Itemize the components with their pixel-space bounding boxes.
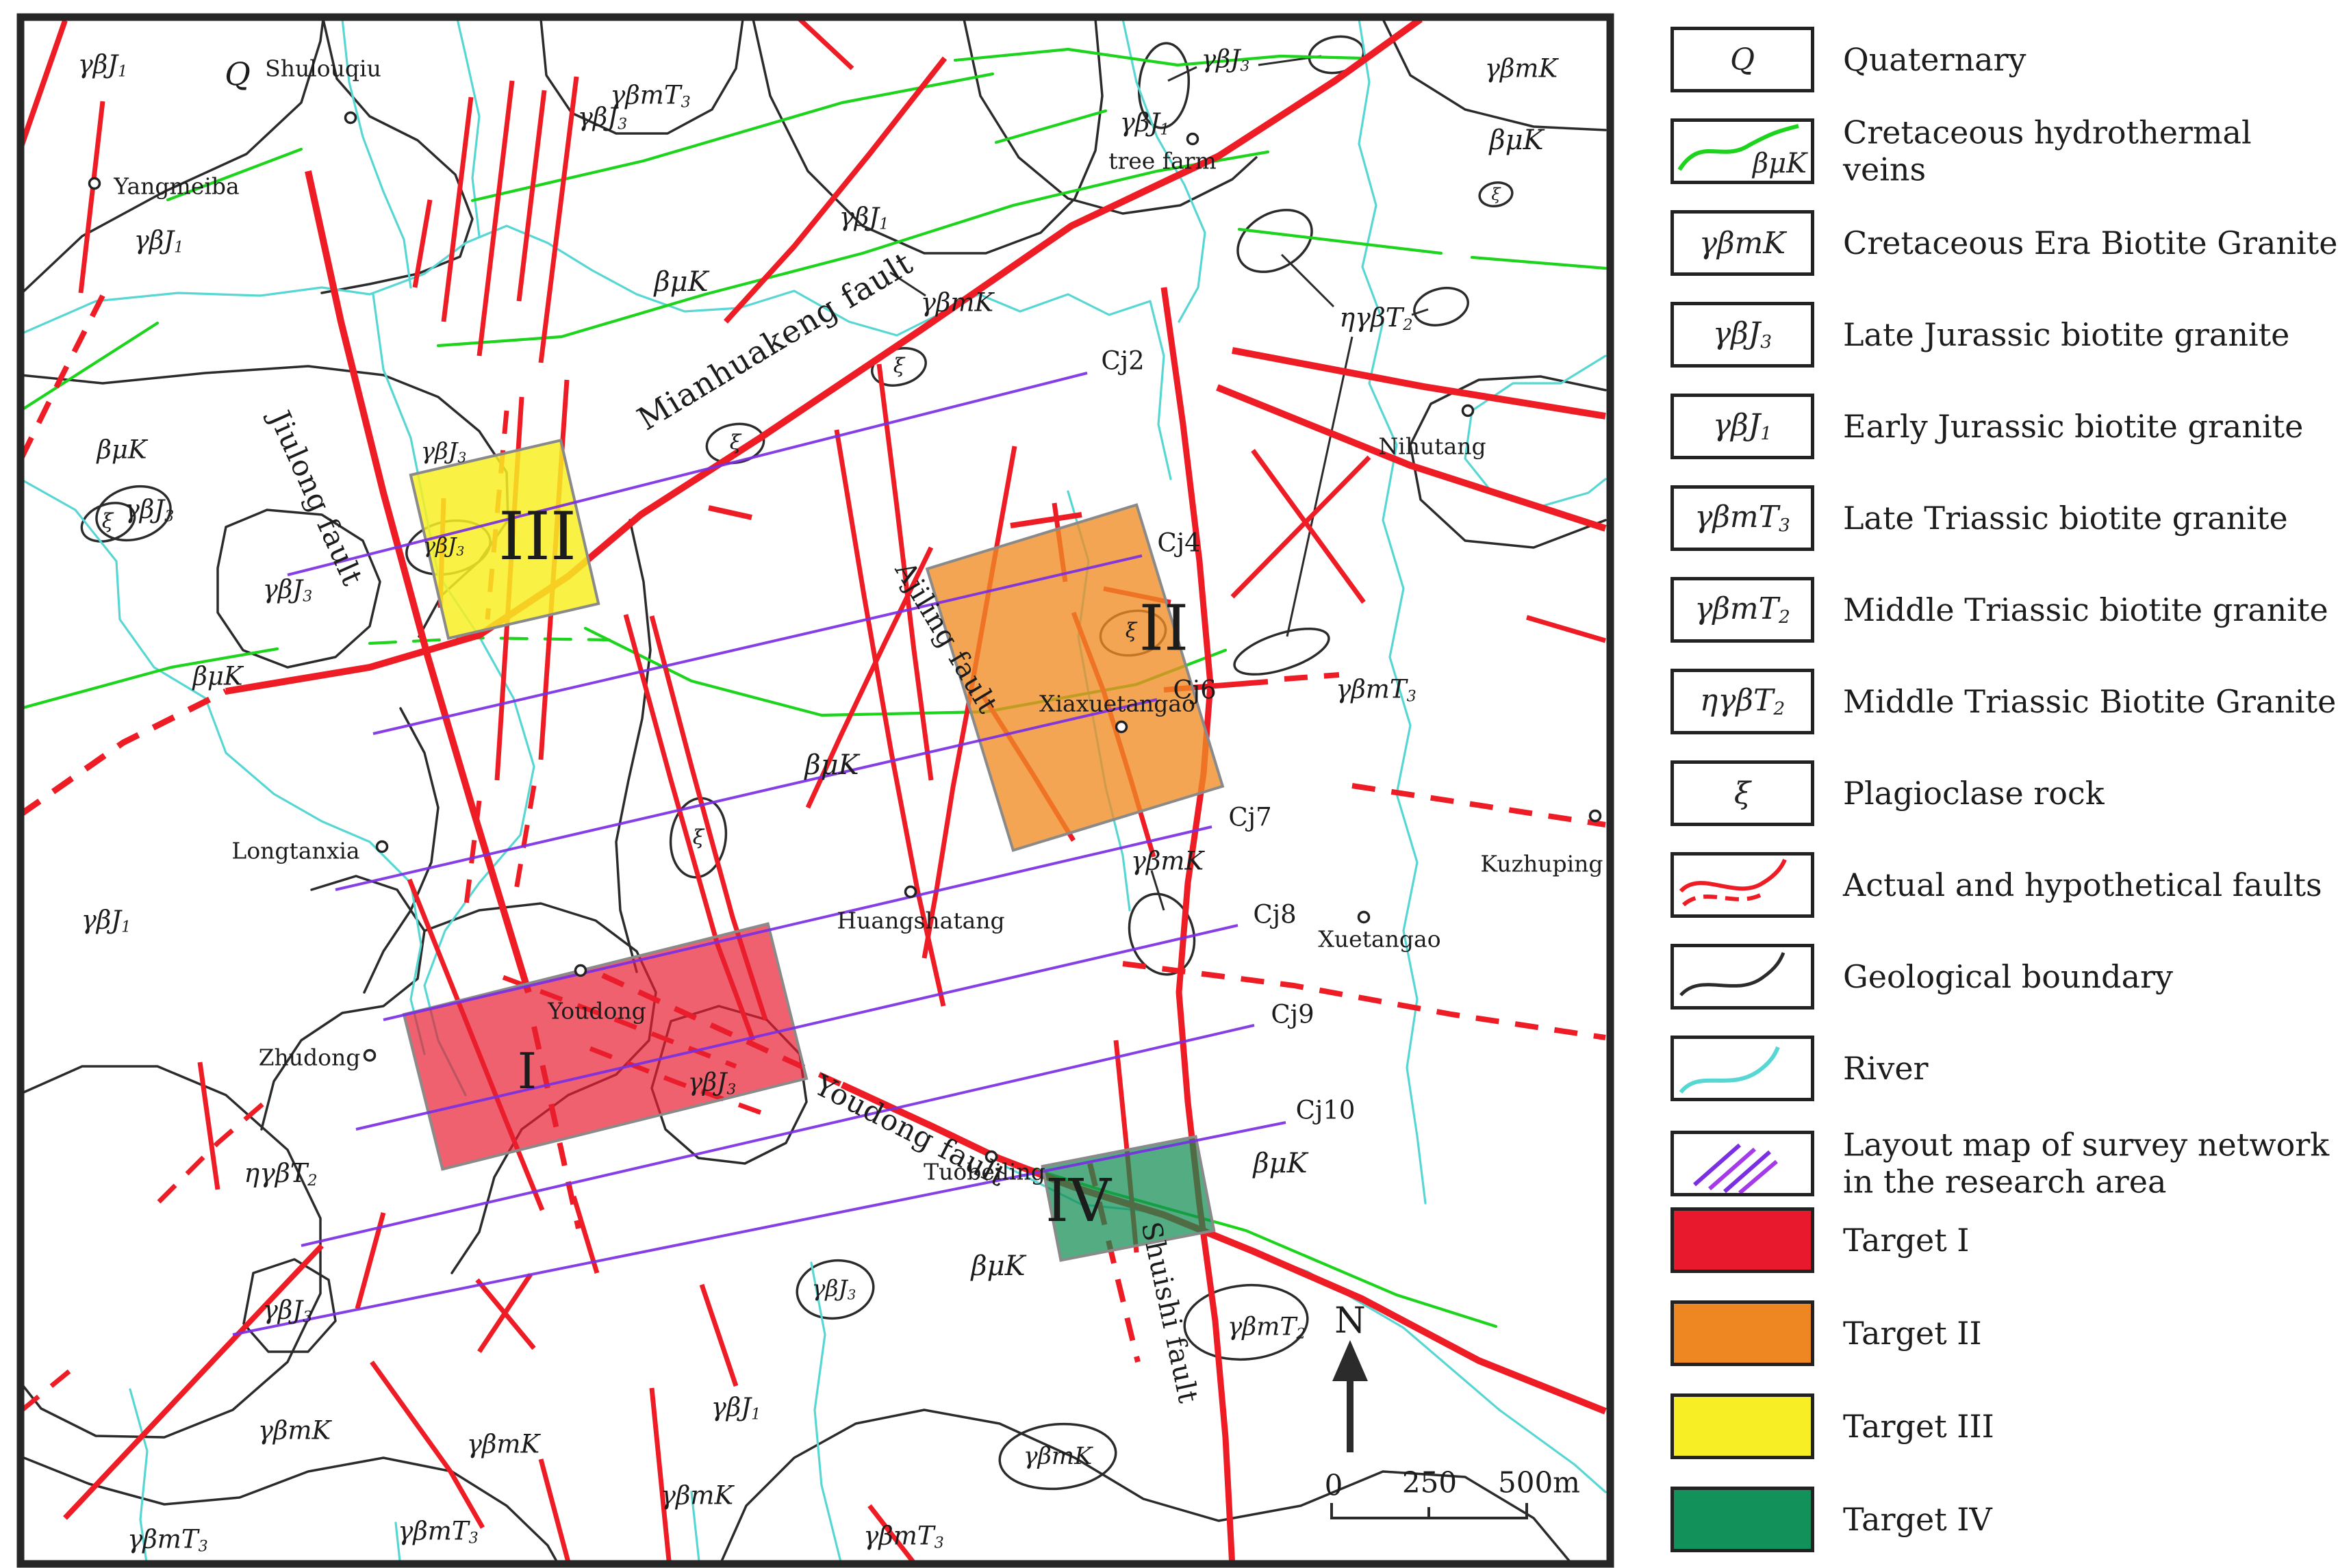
- legend-swatch-2: βμK: [1670, 118, 1814, 184]
- legend-label-5: Early Jurassic biotite granite: [1843, 408, 2303, 445]
- unit-symbol-subscript: 3: [1760, 332, 1772, 353]
- legend-label-3: Cretaceous Era Biotite Granite: [1843, 224, 2337, 261]
- legend-symbol-text: γβJ1: [1713, 408, 1772, 444]
- unit-symbol-subscript: 3: [1779, 515, 1790, 537]
- legend-swatch-15: [1670, 1300, 1814, 1366]
- legend-label-4: Late Jurassic biotite granite: [1843, 316, 2289, 353]
- legend-symbol-text: γβmT2: [1694, 591, 1790, 628]
- place-marker-shulouqiu: [346, 113, 356, 123]
- legend-label-6: Late Triassic biotite granite: [1843, 500, 2288, 537]
- legend-swatch-16: [1670, 1393, 1814, 1459]
- legend-label-17: Target IV: [1843, 1501, 1992, 1538]
- legend-symbol-text: γβmT3: [1694, 500, 1790, 536]
- legend-swatch-7: γβmT2: [1670, 577, 1814, 643]
- legend-label-7: Middle Triassic biotite granite: [1843, 591, 2328, 628]
- legend-label-11: Geological boundary: [1843, 958, 2173, 995]
- unit-symbol-base: γβmT: [1694, 591, 1779, 626]
- place-marker-kuzhuping: [1590, 811, 1601, 821]
- faults-icon: [1674, 856, 1811, 914]
- unit-symbol-subscript: 2: [1773, 699, 1785, 720]
- legend-swatch-3: γβmK: [1670, 210, 1814, 276]
- unit-symbol-base: γβJ: [1713, 316, 1760, 351]
- legend-swatch-9: ξ: [1670, 760, 1814, 826]
- legend-swatch-14: [1670, 1207, 1814, 1273]
- place-marker-tuobeiling: [987, 1152, 997, 1162]
- place-marker-yangmeiba: [90, 179, 100, 189]
- place-marker-zhudong: [365, 1051, 375, 1061]
- unit-symbol-subscript: 2: [1779, 607, 1790, 628]
- unit-symbol-base: γβmT: [1694, 500, 1779, 535]
- legend-symbol-text: γβmK: [1699, 226, 1786, 261]
- legend-label-14: Target I: [1843, 1222, 1969, 1259]
- unit-symbol-base: ηγβT: [1700, 683, 1773, 718]
- legend-swatch-1: Q: [1670, 27, 1814, 92]
- legend-label-10: Actual and hypothetical faults: [1843, 866, 2322, 903]
- legend-swatch-10: [1670, 852, 1814, 918]
- unit-symbol-base: γβJ: [1713, 408, 1760, 443]
- legend-swatch-12: [1670, 1036, 1814, 1101]
- legend-symbol-text: γβJ3: [1713, 316, 1772, 352]
- geological-map-figure: QγβJ1γβJ1γβJ1γβJ1γβJ1γβJ1γβJ3γβJ3γβJ3γβJ…: [0, 0, 2338, 1568]
- legend-swatch-8: ηγβT2: [1670, 669, 1814, 734]
- river-icon: [1674, 1039, 1811, 1098]
- place-marker-xiaxuetangao: [1117, 722, 1127, 732]
- legend-symbol-text: ξ: [1734, 776, 1751, 811]
- legend-label-1: Quaternary: [1843, 41, 2026, 78]
- place-marker-tree-farm: [1188, 134, 1198, 144]
- legend-label-9: Plagioclase rock: [1843, 775, 2105, 812]
- legend-symbol-text: ηγβT2: [1700, 683, 1785, 719]
- legend-swatch-13: [1670, 1131, 1814, 1196]
- unit-symbol-subscript: 1: [1760, 424, 1772, 445]
- legend-swatch-11: [1670, 944, 1814, 1010]
- place-marker-nihutang: [1463, 406, 1473, 416]
- legend-symbol-text: Q: [1730, 42, 1755, 77]
- place-marker-xuetangao: [1359, 912, 1369, 923]
- place-marker-longtanxia: [377, 842, 387, 852]
- legend-symbol-text: βμK: [1753, 148, 1807, 179]
- legend-label-15: Target II: [1843, 1315, 1982, 1352]
- legend-swatch-17: [1670, 1487, 1814, 1552]
- legend-label-13: Layout map of survey network in the rese…: [1843, 1127, 2329, 1201]
- legend-swatch-6: γβmT3: [1670, 485, 1814, 551]
- legend-label-12: River: [1843, 1050, 1929, 1087]
- unit-symbol-base: Q: [1730, 42, 1755, 77]
- unit-symbol-base: ξ: [1734, 776, 1751, 811]
- legend-label-16: Target III: [1843, 1408, 1994, 1445]
- place-marker-huangshatang: [906, 887, 916, 897]
- survey-icon: [1674, 1134, 1811, 1193]
- legend-swatch-5: γβJ1: [1670, 394, 1814, 459]
- legend-label-8: Middle Triassic Biotite Granite: [1843, 683, 2336, 720]
- unit-symbol-base: γβmK: [1699, 226, 1786, 261]
- legend-label-2: Cretaceous hydrothermal veins: [1843, 114, 2338, 189]
- legend-swatch-4: γβJ3: [1670, 302, 1814, 368]
- boundary-icon: [1674, 947, 1811, 1006]
- place-marker-youdong: [576, 966, 586, 976]
